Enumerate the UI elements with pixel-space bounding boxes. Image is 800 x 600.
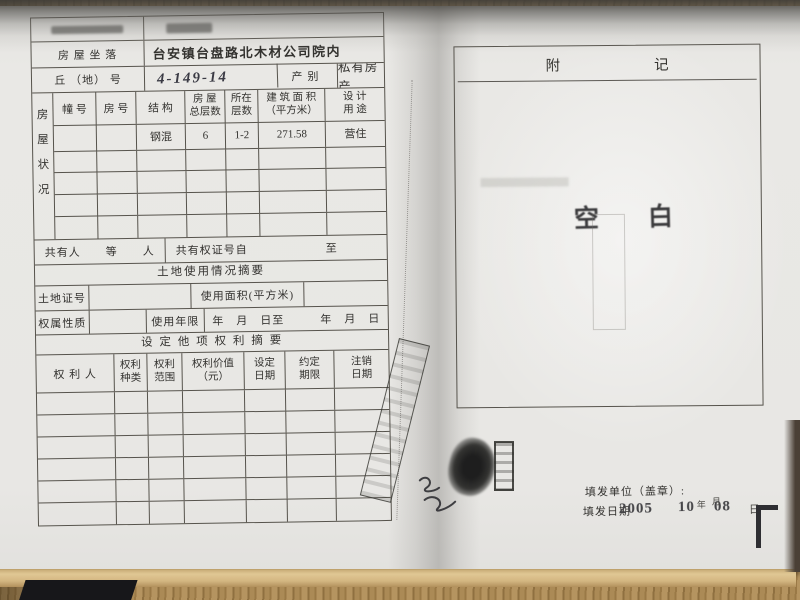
empty-cell (39, 502, 117, 525)
empty-cell (184, 434, 246, 456)
header-line: 权利价值 (192, 358, 234, 371)
empty-cell (116, 458, 149, 480)
empty-cell (327, 212, 386, 235)
empty-cell (260, 213, 327, 236)
empty-cell (226, 170, 259, 191)
header-line: 日期 (254, 370, 275, 383)
property-form-table: 房 屋 坐 落 台安镇台盘路北木材公司院内 丘 （地） 号 4-149-14 产… (30, 12, 392, 526)
header-floor-area: 建 筑 面 积（平方米） (258, 89, 325, 122)
ghost-ink-transfer (481, 177, 569, 187)
empty-cell (185, 500, 247, 523)
empty-cell (187, 215, 227, 237)
housing-header-row: 幢 号 房 号 结 构 房 屋总层数 所在层数 建 筑 面 积（平方米） 设 计… (53, 88, 384, 126)
empty-cell (37, 414, 115, 436)
floor-area-value: 271.58 (259, 122, 326, 148)
empty-cell (38, 436, 116, 458)
header-right-scope: 权利范围 (147, 353, 183, 391)
empty-cell (97, 172, 137, 193)
header-line: 用 途 (343, 104, 367, 117)
co-owner-label-cell: 共有人 等 人 (35, 238, 166, 264)
rights-empty-row (39, 498, 391, 526)
header-right-holder: 权 利 人 (36, 354, 115, 392)
stamped-month: 10 (678, 499, 695, 516)
header-right-value: 权利价值（元） (182, 352, 245, 390)
empty-cell (259, 148, 326, 170)
structure-value: 钢混 (137, 124, 186, 150)
status-char: 屋 (37, 131, 49, 147)
header-line: 总层数 (189, 106, 221, 119)
empty-cell (227, 214, 260, 236)
cert-from-label: 共有权证号自 (176, 241, 248, 258)
issue-date-line: 填发日期 2005 10 年 08 月 日 (583, 498, 793, 529)
empty-cell (54, 173, 97, 195)
empty-cell (286, 389, 335, 411)
empty-cell (337, 498, 391, 521)
empty-cell (247, 500, 288, 523)
header-line: 层数 (231, 106, 252, 119)
empty-cell (148, 391, 183, 413)
co-owner-suffix: 等 (106, 243, 118, 259)
empty-cell (246, 478, 287, 500)
empty-cell (246, 456, 287, 478)
rights-header-row: 权 利 人 权利种类 权利范围 权利价值（元） 设定日期 约定期限 注销日期 (36, 350, 389, 394)
housing-status-vertical-label: 房 屋 状 况 (32, 93, 55, 239)
empty-cell (38, 480, 116, 502)
empty-cell (259, 169, 326, 191)
header-building-no: 幢 号 (53, 93, 96, 125)
header-line: 权利 (120, 360, 141, 373)
plot-number-handwritten: 4-149-14 (145, 63, 279, 91)
location-value: 台安镇台盘路北木材公司院内 (144, 37, 383, 66)
empty-cell (115, 392, 148, 414)
use-years-label: 使用年限 (147, 309, 205, 333)
category-label: 产别 (278, 64, 338, 89)
header-line: 日期 (351, 369, 372, 382)
located-floors-value: 1-2 (226, 123, 259, 148)
appendix-box: 附 记 空 白 (453, 44, 763, 409)
issuer-label: 填发单位（盖章）: (585, 482, 685, 499)
empty-cell (37, 392, 115, 414)
header-line: 约定 (299, 357, 320, 370)
empty-cell (187, 193, 227, 214)
dark-object-on-desk (18, 580, 137, 600)
header-line: 期限 (299, 370, 320, 383)
empty-cell (117, 502, 150, 525)
empty-cell (327, 190, 386, 212)
status-char: 房 (37, 106, 49, 122)
empty-cell (286, 411, 335, 433)
header-line: 权利 (154, 359, 175, 372)
empty-cell (227, 192, 260, 213)
section-title-text: 设 定 他 项 权 利 摘 要 (141, 332, 283, 353)
section-title-text: 土地使用情况摘要 (157, 262, 265, 284)
empty-cell (288, 499, 337, 522)
header-line: （平方米） (265, 105, 318, 118)
designed-use-value: 营住 (326, 121, 385, 147)
header-line: 设 计 (343, 92, 367, 105)
empty-cell (149, 457, 184, 479)
header-located-floors: 所在层数 (225, 90, 258, 122)
empty-cell (304, 281, 387, 306)
header-designed-use: 设 计用 途 (325, 88, 384, 121)
land-area-label: 使用面积(平方米) (191, 282, 304, 308)
header-line: （元） (197, 371, 229, 384)
corner-registration-mark (756, 505, 761, 548)
empty-cell (287, 455, 336, 477)
building-no-value (54, 125, 97, 151)
co-owner-unit: 人 (143, 243, 155, 259)
property-certificate-photo: 房 屋 坐 落 台安镇台盘路北木材公司院内 丘 （地） 号 4-149-14 产… (0, 0, 800, 600)
obscured-handwriting (166, 22, 212, 33)
month-char: 月 (712, 495, 721, 508)
category-value: 私有房产 (338, 63, 384, 88)
co-owner-cert-cell: 共有权证号自 至 (166, 235, 387, 262)
empty-cell (138, 215, 187, 238)
empty-cell (246, 434, 287, 456)
empty-cell (260, 191, 327, 213)
header-line: 范围 (154, 372, 175, 385)
empty-cell (245, 390, 286, 412)
obscured-value-cell (144, 13, 383, 40)
empty-cell (326, 147, 385, 169)
empty-cell (245, 412, 286, 434)
empty-cell (90, 310, 147, 334)
empty-cell (148, 413, 183, 435)
empty-cell (226, 149, 259, 170)
empty-cell (89, 284, 191, 310)
cert-to-label: 至 (326, 240, 338, 256)
empty-cell (115, 414, 148, 436)
empty-cell (186, 171, 226, 192)
header-line: 房 屋 (193, 94, 217, 107)
appendix-title: 附 记 (454, 45, 759, 77)
room-no-value (97, 125, 137, 150)
empty-cell (150, 501, 185, 524)
empty-cell (186, 149, 226, 170)
empty-cell (98, 216, 138, 238)
desk-edge-right (784, 420, 800, 572)
status-char: 况 (38, 181, 50, 197)
obscured-label-cell (31, 17, 144, 42)
location-label: 房 屋 坐 落 (31, 41, 144, 68)
stamped-year: 2005 (619, 500, 653, 517)
appendix-title-char: 记 (654, 53, 669, 74)
appendix-title-underline (458, 79, 757, 83)
tenure-label: 权属性质 (36, 311, 90, 335)
empty-cell (183, 390, 245, 412)
empty-cell (98, 194, 138, 215)
header-cancel-date: 注销日期 (334, 350, 389, 388)
empty-cell (137, 172, 186, 194)
empty-cell (326, 168, 385, 190)
empty-cell (116, 480, 149, 502)
use-years-date-range: 年 月 日至 年 月 日 (205, 306, 388, 332)
header-line: 设定 (254, 358, 275, 371)
land-cert-label: 土地证号 (35, 286, 89, 311)
plot-label: 丘 （地） 号 (32, 67, 145, 93)
empty-cell (287, 477, 336, 499)
header-right-type: 权利种类 (114, 354, 148, 392)
empty-cell (184, 478, 246, 500)
empty-cell (55, 217, 98, 240)
appendix-title-char: 附 (546, 54, 561, 75)
empty-cell (149, 435, 184, 457)
empty-cell (97, 150, 137, 171)
empty-cell (184, 456, 246, 478)
housing-status-block: 房 屋 状 况 幢 号 房 号 结 构 房 屋总层数 所在层数 建 筑 面 积（… (32, 88, 386, 241)
header-agreed-term: 约定期限 (285, 351, 335, 389)
status-char: 状 (37, 156, 49, 172)
empty-cell (54, 151, 97, 173)
empty-cell (116, 436, 149, 458)
empty-cell (183, 412, 245, 434)
small-seal-stamp (494, 441, 514, 491)
ghost-stamp-outline (592, 214, 626, 330)
header-structure: 结 构 (136, 91, 185, 124)
blank-stamp: 空 白 (573, 196, 685, 235)
empty-cell (38, 458, 116, 480)
obscured-text (51, 25, 123, 34)
header-line: 所在 (231, 93, 252, 106)
empty-cell (149, 479, 184, 501)
header-line: 建 筑 面 积 (266, 92, 316, 105)
year-char: 年 (697, 498, 706, 511)
header-line: 注销 (351, 356, 372, 369)
total-floors-value: 6 (186, 123, 226, 148)
header-total-floors: 房 屋总层数 (185, 90, 225, 122)
housing-table: 幢 号 房 号 结 构 房 屋总层数 所在层数 建 筑 面 积（平方米） 设 计… (53, 88, 386, 239)
empty-cell (137, 150, 186, 172)
empty-cell (287, 433, 336, 455)
header-set-date: 设定日期 (244, 352, 286, 390)
co-owner-label: 共有人 (45, 244, 81, 261)
empty-cell (55, 195, 98, 217)
header-line: 种类 (120, 372, 141, 385)
empty-cell (138, 193, 187, 215)
header-room-no: 房 号 (96, 92, 136, 124)
